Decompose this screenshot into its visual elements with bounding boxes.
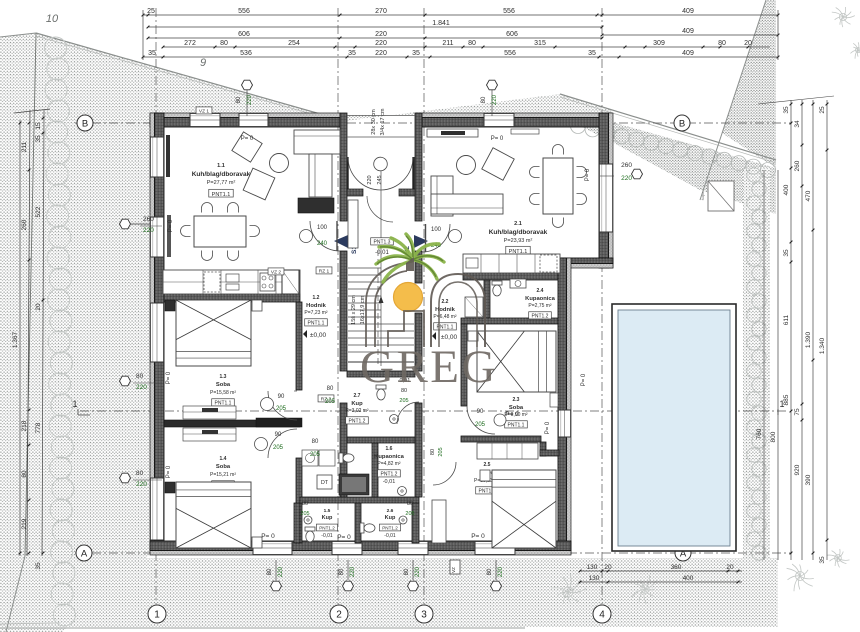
svg-text:90: 90 bbox=[477, 409, 484, 415]
svg-text:220: 220 bbox=[143, 227, 154, 234]
svg-text:205: 205 bbox=[310, 452, 321, 458]
svg-text:PNT1.1: PNT1.1 bbox=[308, 321, 325, 327]
svg-text:2.4: 2.4 bbox=[537, 288, 544, 294]
svg-text:P=27,77 m²: P=27,77 m² bbox=[207, 180, 236, 186]
svg-text:PNT1.2: PNT1.2 bbox=[381, 472, 398, 478]
svg-text:360: 360 bbox=[671, 564, 682, 571]
svg-text:10: 10 bbox=[46, 13, 59, 25]
svg-text:9: 9 bbox=[200, 57, 206, 69]
svg-text:RZ 1: RZ 1 bbox=[319, 269, 330, 275]
svg-text:220: 220 bbox=[247, 94, 253, 105]
svg-text:P= 0: P= 0 bbox=[585, 168, 591, 181]
svg-text:35: 35 bbox=[588, 50, 596, 57]
svg-text:220: 220 bbox=[375, 50, 387, 57]
svg-text:760: 760 bbox=[756, 428, 763, 439]
svg-text:PNT1.2: PNT1.2 bbox=[319, 526, 335, 531]
svg-text:80: 80 bbox=[236, 96, 242, 103]
svg-text:90: 90 bbox=[275, 432, 282, 438]
svg-text:219: 219 bbox=[21, 518, 28, 529]
svg-text:90: 90 bbox=[278, 394, 285, 400]
svg-text:35: 35 bbox=[412, 50, 420, 57]
svg-text:536: 536 bbox=[240, 50, 252, 57]
svg-text:P=23,93 m²: P=23,93 m² bbox=[504, 238, 533, 244]
svg-text:80: 80 bbox=[136, 373, 144, 380]
svg-text:1: 1 bbox=[154, 610, 160, 621]
svg-text:220: 220 bbox=[136, 481, 147, 488]
svg-text:220: 220 bbox=[350, 566, 356, 577]
svg-text:20: 20 bbox=[35, 303, 42, 311]
svg-text:1.5: 1.5 bbox=[324, 508, 331, 514]
svg-text:15š x 29 cm: 15š x 29 cm bbox=[351, 295, 357, 325]
svg-text:270: 270 bbox=[375, 8, 387, 15]
svg-text:80: 80 bbox=[430, 449, 436, 455]
svg-text:205: 205 bbox=[325, 399, 336, 405]
svg-text:P= 0: P= 0 bbox=[261, 533, 275, 540]
svg-text:220: 220 bbox=[415, 566, 421, 577]
svg-text:409: 409 bbox=[682, 50, 694, 57]
svg-text:±0,00: ±0,00 bbox=[310, 332, 327, 339]
svg-text:260: 260 bbox=[143, 216, 154, 223]
svg-text:P= 0: P= 0 bbox=[166, 371, 172, 384]
svg-text:20: 20 bbox=[744, 40, 752, 47]
svg-text:2: 2 bbox=[336, 610, 342, 621]
svg-text:1: 1 bbox=[72, 399, 77, 409]
svg-text:VZ: VZ bbox=[451, 567, 456, 573]
svg-text:3: 3 bbox=[421, 610, 427, 621]
svg-text:80: 80 bbox=[487, 568, 493, 575]
svg-text:80: 80 bbox=[468, 40, 476, 47]
svg-text:1.2: 1.2 bbox=[313, 295, 320, 301]
svg-text:254: 254 bbox=[288, 40, 300, 47]
svg-text:220: 220 bbox=[492, 94, 498, 105]
svg-text:35: 35 bbox=[35, 135, 42, 143]
svg-text:P=6,48 m²: P=6,48 m² bbox=[433, 314, 457, 320]
svg-text:80: 80 bbox=[267, 568, 273, 575]
svg-text:15: 15 bbox=[35, 122, 42, 130]
svg-text:522: 522 bbox=[35, 206, 42, 217]
svg-text:80: 80 bbox=[718, 40, 726, 47]
svg-text:PNT1.1: PNT1.1 bbox=[212, 192, 231, 198]
svg-text:470: 470 bbox=[805, 190, 812, 201]
svg-text:P=15,58 m²: P=15,58 m² bbox=[210, 390, 236, 396]
svg-text:220: 220 bbox=[136, 384, 147, 391]
svg-text:35: 35 bbox=[783, 249, 790, 257]
svg-text:556: 556 bbox=[504, 50, 516, 57]
svg-text:100: 100 bbox=[317, 225, 328, 231]
svg-text:80: 80 bbox=[312, 439, 319, 445]
svg-text:409: 409 bbox=[682, 8, 694, 15]
svg-text:130: 130 bbox=[589, 575, 600, 582]
svg-text:260: 260 bbox=[794, 160, 801, 171]
svg-text:1.367: 1.367 bbox=[12, 331, 19, 348]
svg-text:P=2,75 m²: P=2,75 m² bbox=[528, 303, 552, 309]
svg-text:920: 920 bbox=[794, 464, 801, 475]
svg-text:Kuh/blag/dboravak: Kuh/blag/dboravak bbox=[489, 229, 548, 236]
svg-text:35: 35 bbox=[35, 562, 42, 570]
svg-text:Kuh/blag/dboravak: Kuh/blag/dboravak bbox=[192, 171, 251, 178]
svg-text:80: 80 bbox=[481, 96, 487, 103]
svg-text:±0,00: ±0,00 bbox=[441, 334, 458, 341]
svg-text:25: 25 bbox=[819, 106, 826, 114]
svg-text:80: 80 bbox=[404, 568, 410, 575]
svg-text:2.3: 2.3 bbox=[513, 397, 520, 403]
svg-text:611: 611 bbox=[783, 314, 790, 325]
svg-text:400: 400 bbox=[683, 575, 694, 582]
svg-text:260: 260 bbox=[21, 219, 28, 230]
svg-text:220: 220 bbox=[621, 175, 632, 182]
svg-text:35: 35 bbox=[148, 50, 156, 57]
svg-text:2.7: 2.7 bbox=[354, 393, 361, 399]
svg-text:218: 218 bbox=[21, 420, 28, 431]
svg-text:P= 0: P= 0 bbox=[471, 533, 485, 540]
svg-text:220: 220 bbox=[498, 566, 504, 577]
svg-text:VZ 2: VZ 2 bbox=[271, 270, 281, 276]
svg-text:2.6: 2.6 bbox=[387, 508, 394, 514]
svg-text:P= 0: P= 0 bbox=[505, 411, 519, 418]
svg-text:Kup: Kup bbox=[322, 515, 333, 521]
svg-text:P=4,82 m²: P=4,82 m² bbox=[377, 461, 401, 467]
svg-text:Kup: Kup bbox=[385, 515, 396, 521]
svg-text:556: 556 bbox=[238, 8, 250, 15]
svg-text:P= 0: P= 0 bbox=[168, 219, 174, 232]
svg-text:245: 245 bbox=[377, 175, 383, 184]
svg-text:PNT1.3: PNT1.3 bbox=[374, 240, 391, 246]
svg-text:1.340: 1.340 bbox=[819, 337, 826, 354]
svg-text:400: 400 bbox=[783, 184, 790, 195]
svg-text:PNT1.2: PNT1.2 bbox=[532, 314, 549, 320]
svg-text:409: 409 bbox=[682, 28, 694, 35]
svg-text:P= 0: P= 0 bbox=[337, 534, 351, 541]
svg-text:šupa: šupa bbox=[700, 191, 705, 200]
svg-text:35: 35 bbox=[819, 556, 826, 564]
svg-text:205: 205 bbox=[273, 445, 284, 451]
svg-text:2.2: 2.2 bbox=[442, 299, 449, 305]
svg-text:28x 30 cm: 28x 30 cm bbox=[371, 109, 377, 135]
svg-text:1.3: 1.3 bbox=[220, 374, 227, 380]
svg-text:Soba: Soba bbox=[216, 382, 231, 388]
svg-text:P= 0: P= 0 bbox=[241, 136, 254, 142]
svg-text:205: 205 bbox=[399, 398, 408, 404]
svg-text:Soba: Soba bbox=[216, 464, 231, 470]
svg-text:80: 80 bbox=[407, 501, 413, 507]
svg-text:GREG: GREG bbox=[360, 341, 498, 393]
svg-text:34: 34 bbox=[794, 120, 801, 128]
svg-text:A: A bbox=[81, 549, 88, 560]
svg-text:80: 80 bbox=[302, 501, 308, 507]
svg-text:1.6: 1.6 bbox=[386, 446, 393, 452]
svg-text:205: 205 bbox=[475, 422, 486, 428]
svg-text:309: 309 bbox=[653, 40, 665, 47]
svg-text:B: B bbox=[679, 119, 685, 130]
svg-text:35: 35 bbox=[783, 106, 790, 114]
svg-text:35: 35 bbox=[348, 50, 356, 57]
svg-text:211: 211 bbox=[21, 141, 28, 152]
svg-text:2.1: 2.1 bbox=[514, 221, 522, 227]
svg-text:-0,01: -0,01 bbox=[321, 533, 333, 539]
svg-text:Hodnik: Hodnik bbox=[306, 303, 326, 309]
svg-text:DT: DT bbox=[321, 480, 329, 486]
svg-text:P=7,23 m²: P=7,23 m² bbox=[304, 310, 328, 316]
svg-text:-0,01: -0,01 bbox=[384, 533, 396, 539]
svg-text:VZ 1: VZ 1 bbox=[199, 109, 209, 115]
svg-text:PNT1.1: PNT1.1 bbox=[508, 423, 525, 429]
svg-text:100: 100 bbox=[431, 227, 442, 233]
svg-text:260: 260 bbox=[621, 162, 632, 169]
svg-text:PNT1.2: PNT1.2 bbox=[349, 419, 366, 425]
svg-text:2.5: 2.5 bbox=[484, 462, 491, 468]
svg-text:P= 0: P= 0 bbox=[581, 373, 587, 386]
svg-text:240: 240 bbox=[317, 241, 328, 247]
svg-text:25: 25 bbox=[147, 8, 155, 15]
svg-text:80: 80 bbox=[136, 470, 144, 477]
svg-text:272: 272 bbox=[184, 40, 196, 47]
svg-text:B: B bbox=[82, 119, 88, 130]
svg-text:220: 220 bbox=[375, 40, 387, 47]
svg-text:205: 205 bbox=[276, 406, 287, 412]
svg-text:390: 390 bbox=[805, 474, 812, 485]
svg-text:P= 0: P= 0 bbox=[491, 136, 504, 142]
svg-text:20: 20 bbox=[604, 564, 612, 571]
svg-text:1.390: 1.390 bbox=[805, 331, 812, 348]
svg-text:80: 80 bbox=[21, 470, 28, 478]
svg-text:Kupaonica: Kupaonica bbox=[374, 454, 404, 460]
svg-text:205: 205 bbox=[300, 511, 309, 517]
svg-text:205: 205 bbox=[438, 447, 444, 456]
svg-text:606: 606 bbox=[238, 31, 250, 38]
svg-text:20: 20 bbox=[726, 564, 734, 571]
svg-text:P=15,21 m²: P=15,21 m² bbox=[210, 472, 236, 478]
svg-text:4: 4 bbox=[599, 610, 605, 621]
svg-text:556: 556 bbox=[503, 8, 515, 15]
svg-text:885: 885 bbox=[783, 394, 790, 405]
svg-text:Kupaonica: Kupaonica bbox=[525, 296, 555, 302]
svg-text:220: 220 bbox=[278, 566, 284, 577]
svg-text:778: 778 bbox=[35, 422, 42, 433]
svg-text:1.1: 1.1 bbox=[217, 163, 225, 169]
svg-text:PNT1.2: PNT1.2 bbox=[382, 526, 398, 531]
svg-text:800: 800 bbox=[770, 431, 777, 442]
svg-text:P=3,02 m²: P=3,02 m² bbox=[345, 408, 369, 414]
svg-text:205: 205 bbox=[405, 511, 414, 517]
svg-text:-0,01: -0,01 bbox=[383, 479, 396, 485]
svg-text:80: 80 bbox=[339, 568, 345, 575]
svg-text:130: 130 bbox=[587, 564, 598, 571]
svg-text:80: 80 bbox=[220, 40, 228, 47]
svg-text:75: 75 bbox=[794, 408, 801, 416]
svg-text:3/4x 17 cm: 3/4x 17 cm bbox=[380, 108, 386, 135]
svg-text:P= 0: P= 0 bbox=[166, 465, 172, 478]
svg-text:606: 606 bbox=[506, 31, 518, 38]
svg-text:-0,01: -0,01 bbox=[375, 250, 389, 256]
svg-text:220: 220 bbox=[367, 175, 373, 184]
svg-text:P= 0: P= 0 bbox=[545, 421, 551, 434]
svg-text:Kup: Kup bbox=[351, 401, 363, 407]
svg-text:1.841: 1.841 bbox=[432, 20, 450, 27]
svg-text:80: 80 bbox=[327, 386, 334, 392]
svg-text:211: 211 bbox=[442, 40, 453, 47]
svg-text:315: 315 bbox=[534, 40, 546, 47]
svg-text:1.4: 1.4 bbox=[220, 456, 227, 462]
svg-text:220: 220 bbox=[375, 31, 387, 38]
